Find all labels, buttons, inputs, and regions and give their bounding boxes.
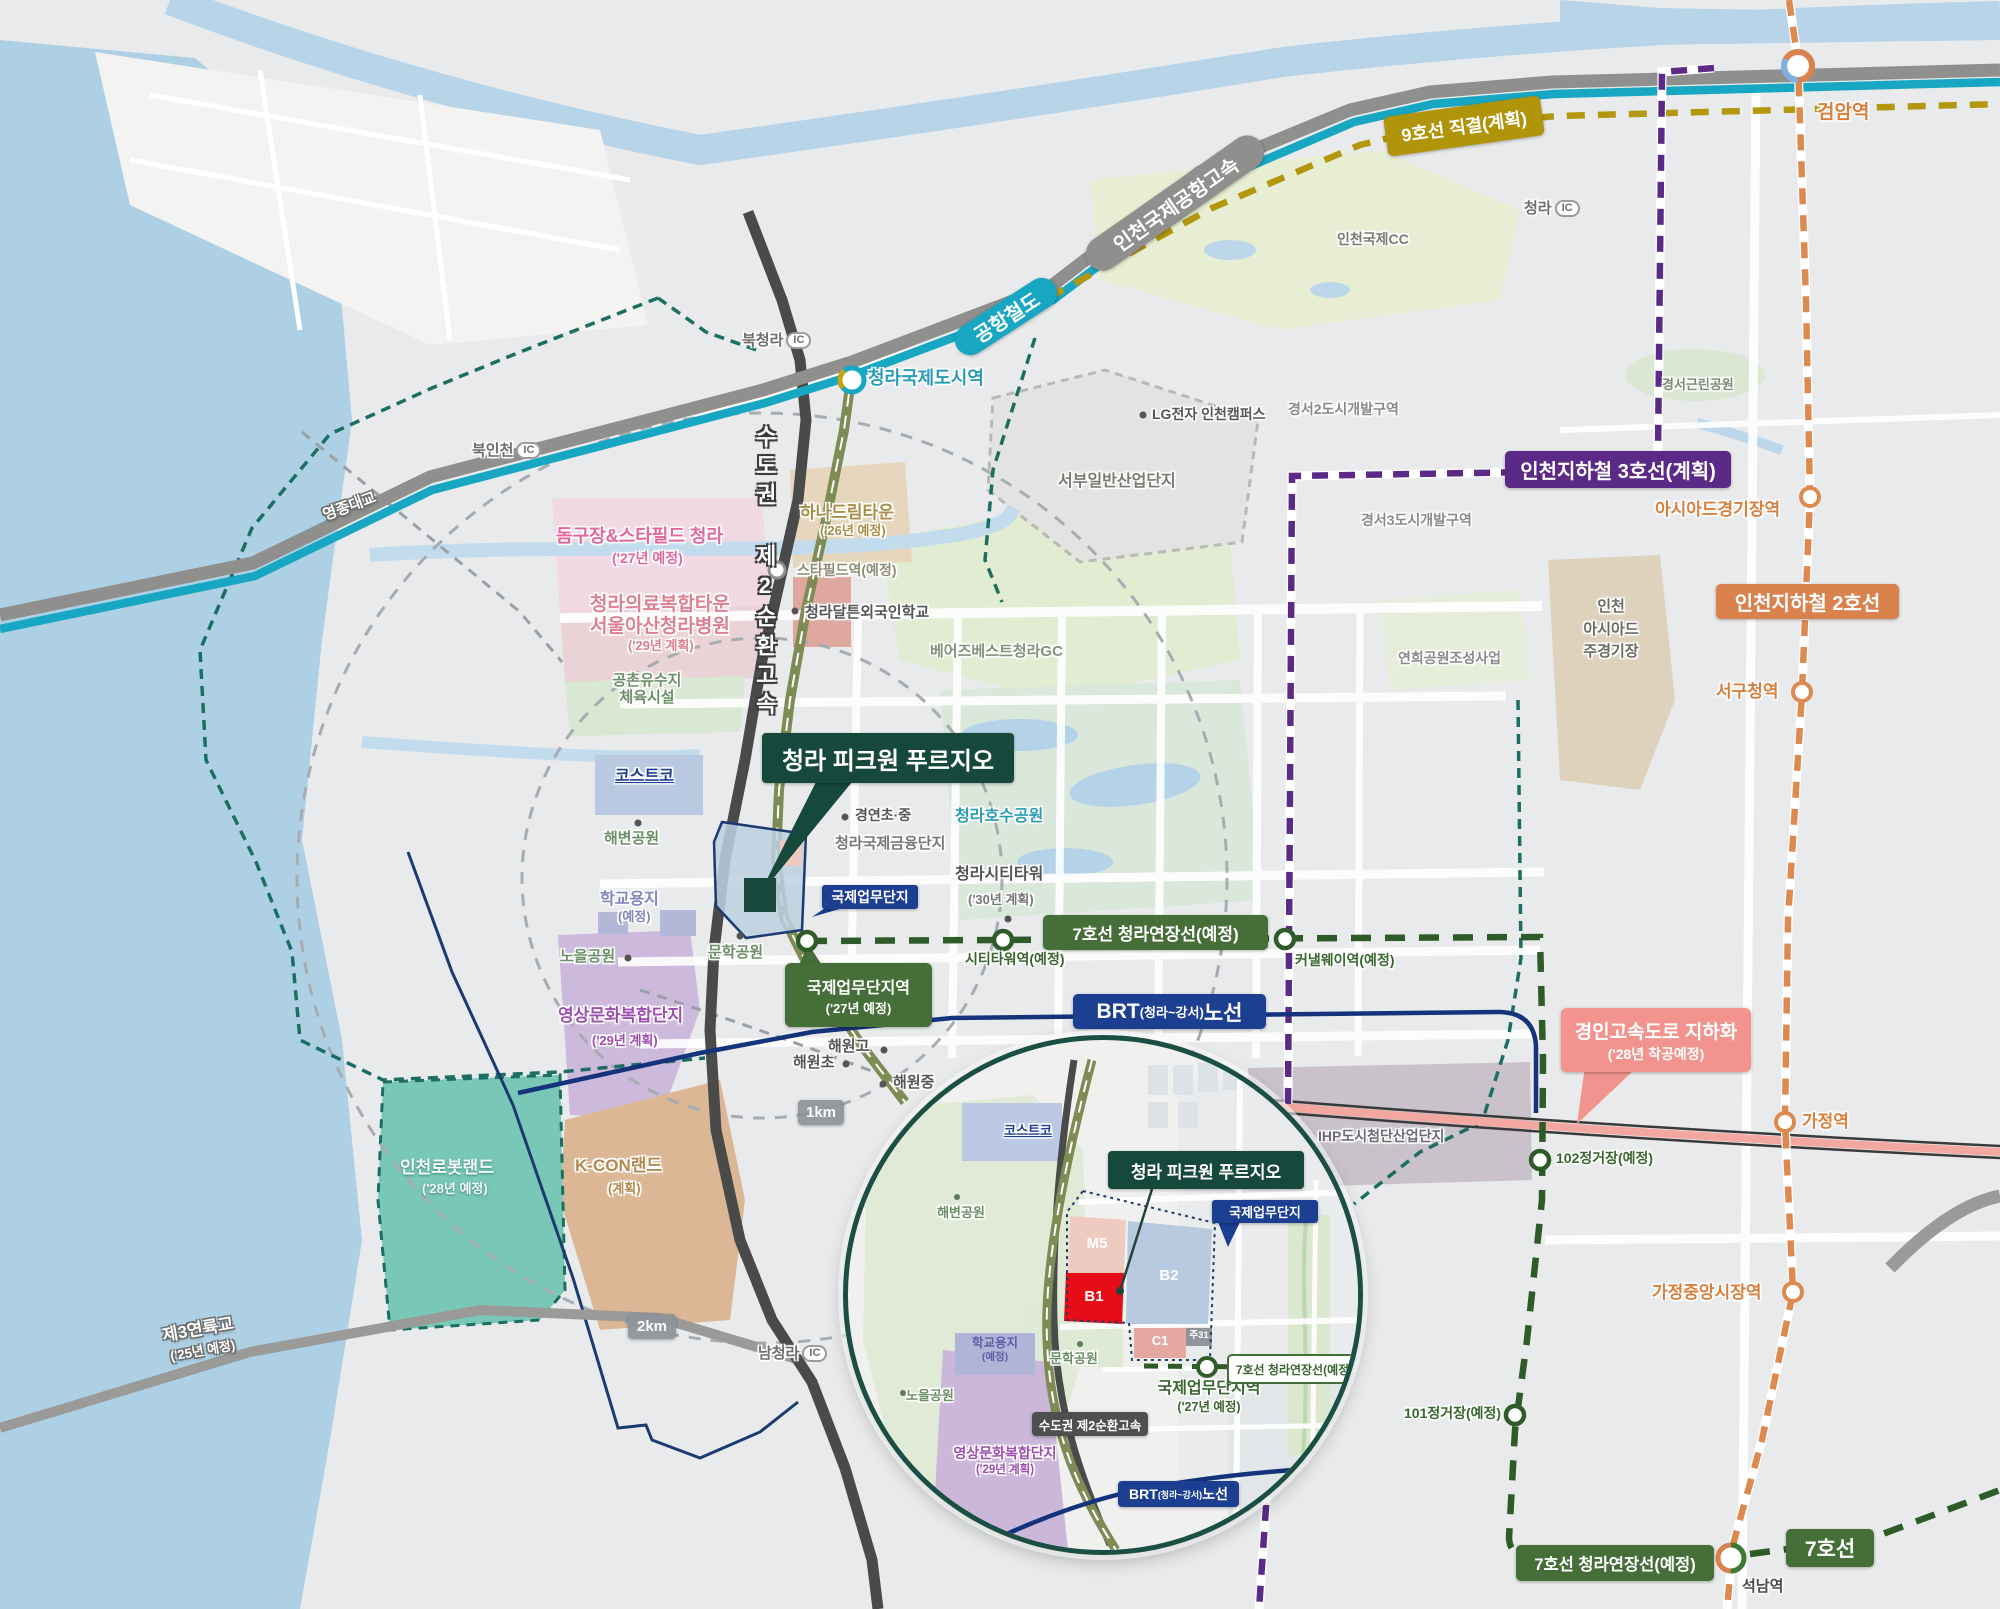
place-gyeongseo3: 경서3도시개발구역 [1361,512,1472,528]
cheongna-transit-map: 9호선 직결(계획) 인천국제공항고속 공항철도 인천지하철 3호선(계획) 인… [0,0,2000,1609]
place-robotland-note: ('28년 예정) [422,1182,488,1197]
place-yeonhui: 연희공원조성사업 [1398,650,1501,666]
place-media-city-note: ('29년 계획) [592,1034,658,1049]
inset-munhak: 문학공원 [1050,1352,1098,1366]
badge-2km: 2km [628,1314,676,1339]
inset-media-city-note: ('29년 계획) [944,1464,1066,1477]
place-media-city: 영상문화복합단지 [558,1006,683,1026]
inset-school-site-note: (예정) [955,1352,1035,1364]
ic-bukcheongna: 북청라IC [742,332,811,349]
inset-noeul: 노을공원 [906,1389,954,1403]
place-asiad-stadium: 인천 아시아드 주경기장 [1556,596,1666,664]
inset-intl-biz-station-note: ('27년 예정) [1146,1401,1272,1415]
place-costco: 코스트코 [615,768,674,786]
inset-beach-park: 해변공원 [926,1206,996,1220]
place-lake-park: 청라호수공원 [955,808,1043,826]
project-callout: 청라 피크원 푸르지오 [762,733,1014,783]
brt-mid: (청라~강서) [1140,1002,1204,1021]
place-gyeongseo-park: 경서근린공원 [1662,378,1734,393]
inset-block-ju31: 주31 [1186,1331,1212,1341]
inset-school-site: 학교용지 [955,1337,1035,1351]
inset-block-b2: B2 [1153,1268,1185,1285]
ic-badge: IC [786,332,811,349]
ic-badge: IC [802,1345,827,1362]
station-gajeong: 가정역 [1802,1112,1849,1132]
place-kcon: K-CON랜드 [575,1156,662,1176]
place-medical1: 청라의료복합타운 [590,594,730,616]
station-102: 102정거장(예정) [1556,1150,1653,1166]
place-beach-park: 해변공원 [604,830,659,847]
line7-ext-label-south: 7호선 청라연장선(예정) [1516,1545,1714,1581]
inset-intl-biz-district-badge: 국제업무단지 [1212,1200,1318,1223]
station-asiad: 아시아드경기장역 [1655,500,1780,520]
inset-line7-ext-label: 7호선 청라연장선(예정) [1227,1354,1362,1384]
ic-cheongna: 청라IC [1524,200,1580,217]
station-seoknam: 석남역 [1742,1578,1783,1595]
ring2-expressway-label: 수도권 제2순환고속 [752,425,777,721]
inset-ring2-badge: 수도권 제2순환고속 [1032,1412,1148,1436]
place-school-site: 학교용지 [600,891,659,909]
intl-biz-station-callout: 국제업무단지역 ('27년 예정) [785,963,932,1027]
place-gyeongyeon: 경연초·중 [855,807,911,823]
place-school-site-note: (예정) [618,910,651,925]
station-canalway: 커낼웨이역(예정) [1295,952,1394,968]
place-citytower-bldg: 청라시티타워 [955,866,1043,884]
subway2-label: 인천지하철 2호선 [1716,584,1899,619]
station-seogucheong: 서구청역 [1716,682,1779,702]
intl-biz-district-badge: 국제업무단지 [822,885,918,909]
place-kcon-note: (계획) [608,1182,641,1197]
inset-block-m5: M5 [1081,1236,1113,1253]
place-robotland: 인천로봇랜드 [400,1158,494,1178]
place-gyeongseo2: 경서2도시개발구역 [1288,401,1399,417]
inset-project-callout: 청라 피크원 푸르지오 [1108,1151,1304,1189]
place-dome: 돔구장&스타필드 청라 [556,526,723,547]
brt-label: BRT(청라~강서)노선 [1073,994,1266,1029]
ic-badge: IC [516,442,541,459]
detail-inset-circle: 청라 피크원 푸르지오 국제업무단지 코스트코 해변공원 학교용지 (예정) 노… [843,1035,1363,1555]
ic-badge: IC [1555,200,1580,217]
station-citytower: 시티타워역(예정) [965,951,1064,967]
inset-block-c1: C1 [1144,1334,1176,1348]
gyeongin-underground-callout: 경인고속도로 지하화 ('28년 착공예정) [1561,1008,1751,1072]
place-haewon-cho: 해원초 [793,1054,834,1071]
brt-prefix: BRT [1097,1000,1140,1024]
place-bears: 베어즈베스트청라GC [930,643,1063,660]
place-seobu: 서부일반산업단지 [1058,473,1176,491]
station-starfield: 스타필드역(예정) [797,562,896,578]
place-lg: LG전자 인천캠퍼스 [1152,406,1266,422]
ic-bukincheon: 북인천IC [472,442,541,459]
place-incheon-cc: 인천국제CC [1337,231,1409,247]
ic-namcheongna: 남청라IC [758,1345,827,1362]
line7-label: 7호선 [1786,1529,1874,1567]
line7-ext-label: 7호선 청라연장선(예정) [1043,915,1268,950]
place-hana: 하나드림타운 [800,503,894,523]
place-medical-note: ('29년 계획) [628,639,694,654]
station-101: 101정거장(예정) [1404,1405,1501,1421]
place-gongchon: 공촌유수지 체육시설 [592,672,702,707]
station-gajeong-market: 가정중앙시장역 [1652,1283,1761,1303]
station-geomam: 검암역 [1817,102,1869,124]
place-finance: 청라국제금융단지 [835,835,945,852]
inset-block-b1: B1 [1078,1289,1110,1306]
inset-media-city: 영상문화복합단지 [944,1446,1066,1461]
place-dalton: 청라달튼외국인학교 [805,604,929,621]
station-cheongna-intl: 청라국제도시역 [868,368,984,389]
place-munhak: 문학공원 [708,944,763,961]
inset-brt-label: BRT(청라~강서)노선 [1118,1481,1239,1507]
subway3-label: 인천지하철 3호선(계획) [1505,451,1731,488]
place-dome-note: ('27년 예정) [612,550,683,566]
place-hana-note: ('26년 예정) [820,524,886,539]
place-noeul: 노을공원 [560,948,615,965]
badge-1km: 1km [798,1100,844,1125]
place-medical2: 서울아산청라병원 [590,616,730,638]
place-citytower-note: ('30년 계획) [968,893,1034,908]
brt-suffix: 노선 [1204,997,1243,1027]
inset-costco: 코스트코 [992,1124,1064,1138]
